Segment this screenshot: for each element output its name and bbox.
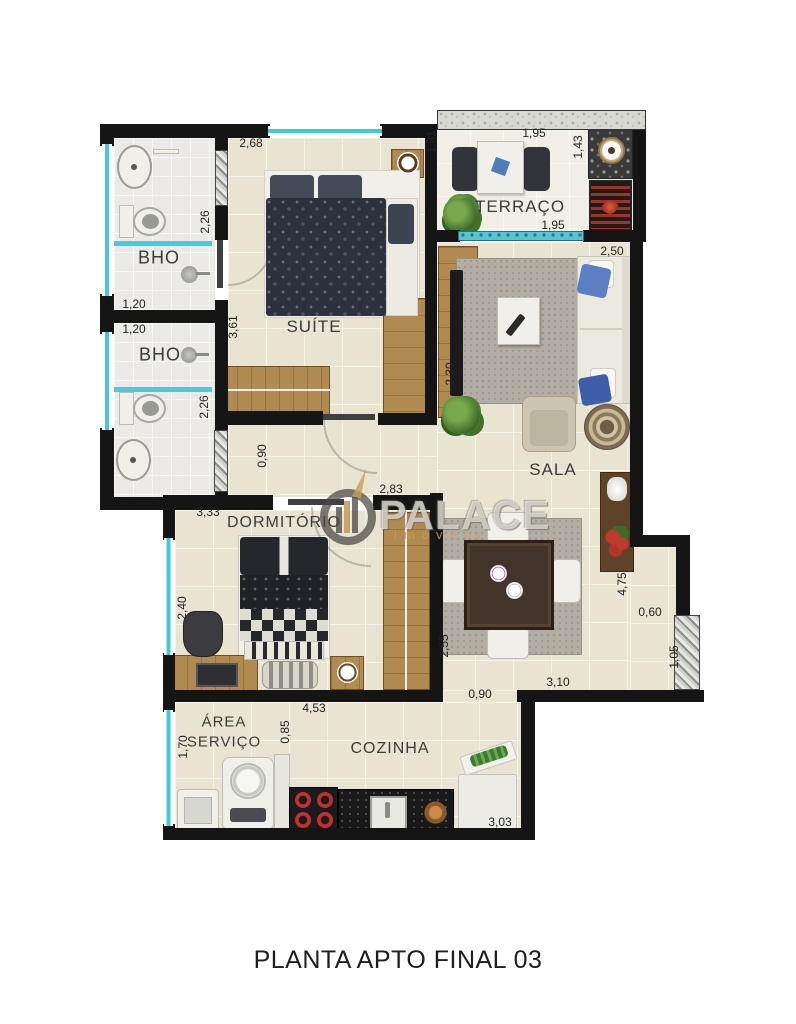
wall xyxy=(429,230,460,242)
dim-label: 2,55 xyxy=(437,634,451,657)
dim-label: 2,30 xyxy=(443,362,457,385)
dim-label: 1,95 xyxy=(541,218,564,232)
room-label-suite: SUÍTE xyxy=(286,317,341,337)
dim-label: 3,61 xyxy=(226,315,240,338)
plan-title: PLANTA APTO FINAL 03 xyxy=(0,946,796,975)
dim-label: 3,33 xyxy=(196,505,219,519)
wall xyxy=(378,413,437,425)
service-partition xyxy=(274,754,290,834)
dining-chair xyxy=(487,626,529,659)
plate xyxy=(490,565,507,582)
wall xyxy=(215,206,228,240)
wall xyxy=(100,124,114,146)
toilet-seat xyxy=(142,401,159,416)
wall xyxy=(630,535,690,547)
dim-label: 1,05 xyxy=(667,645,681,668)
floor-plan-canvas: BHO BHO SUÍTE TERRAÇO SALA DORMITÓRIO ÁR… xyxy=(0,0,796,1024)
dim-label: 4,53 xyxy=(302,701,325,715)
dim-label: 2,26 xyxy=(198,210,212,233)
toilet-tank xyxy=(119,392,134,425)
plant xyxy=(442,396,480,434)
dim-label: 0,85 xyxy=(278,720,292,743)
sink-drain xyxy=(131,164,137,170)
dim-label: 3,03 xyxy=(488,815,511,829)
sink-drain xyxy=(130,457,136,463)
dim-label: 0,90 xyxy=(255,444,269,467)
dim-label: 1,95 xyxy=(522,126,545,140)
sofa-seam xyxy=(580,328,627,330)
faucet xyxy=(385,802,390,818)
dim-label: 1,43 xyxy=(571,135,585,158)
plant xyxy=(443,198,477,232)
wall xyxy=(220,411,323,425)
plate xyxy=(506,582,523,599)
terrace-window-sill xyxy=(458,231,584,241)
wall xyxy=(163,505,175,540)
window xyxy=(164,538,173,655)
door-leaf xyxy=(288,499,344,505)
room-label-bho1: BHO xyxy=(138,248,180,269)
dim-label: 3,10 xyxy=(546,675,569,689)
dim-label: 1,20 xyxy=(122,322,145,336)
room-label-terraco: TERRAÇO xyxy=(475,197,565,217)
window xyxy=(164,710,173,826)
pouf xyxy=(262,661,318,689)
bed-duvet xyxy=(266,198,386,316)
bed-bench xyxy=(244,641,324,660)
dim-label: 2,40 xyxy=(175,596,189,619)
wall xyxy=(163,653,175,712)
bed-checker xyxy=(240,609,328,641)
lamp xyxy=(397,152,419,174)
wall xyxy=(630,242,643,547)
wall xyxy=(521,690,535,840)
shaft-hatch xyxy=(215,150,228,206)
sofa-pillow-blue xyxy=(578,374,612,407)
window xyxy=(102,332,112,430)
dim-label: 1,20 xyxy=(122,297,145,311)
washer-lid xyxy=(230,763,266,799)
shower-glass xyxy=(114,387,212,392)
wall xyxy=(163,828,535,840)
desk-chair xyxy=(183,611,223,657)
round-rug xyxy=(584,404,630,450)
bed-pillow xyxy=(388,204,414,244)
armchair-seat xyxy=(530,410,568,446)
shower-arm xyxy=(195,353,209,356)
vase xyxy=(607,477,627,501)
wall xyxy=(517,690,704,702)
burner xyxy=(317,792,333,808)
dim-label: 1,70 xyxy=(176,735,190,758)
burner xyxy=(295,792,311,808)
dim-label: 0,60 xyxy=(638,605,661,619)
toilet-seat xyxy=(142,214,159,229)
flowers xyxy=(603,526,631,558)
tray xyxy=(337,662,358,683)
wall xyxy=(215,124,228,150)
terrace-chair xyxy=(452,147,479,191)
sofa-back xyxy=(622,257,630,403)
wall xyxy=(583,230,646,242)
laptop xyxy=(196,663,238,687)
wall xyxy=(633,112,646,242)
wall xyxy=(430,493,443,702)
shower-glass xyxy=(114,241,212,246)
bed-pillows xyxy=(240,537,328,575)
window xyxy=(102,144,112,296)
bho2-door-hatch xyxy=(214,430,228,492)
room-label-dormitorio: DORMITÓRIO xyxy=(227,514,341,532)
dim-label: 2,50 xyxy=(600,244,623,258)
burner xyxy=(295,812,311,828)
dim-label: 4,75 xyxy=(615,572,629,595)
dim-label: 1,31 xyxy=(424,130,438,153)
wall xyxy=(100,310,215,323)
room-label-area-servico-2: SERVIÇO xyxy=(187,734,261,751)
grill-sink-drain xyxy=(608,147,615,154)
burner xyxy=(317,812,333,828)
door-leaf xyxy=(217,240,223,288)
bed-duvet xyxy=(240,575,328,609)
toilet-tank xyxy=(119,205,134,238)
counter-decor xyxy=(424,799,447,826)
towel-bar xyxy=(153,149,179,154)
room-label-bho2: BHO xyxy=(139,345,181,366)
room-label-area-servico-1: ÁREA xyxy=(202,714,247,731)
wall xyxy=(676,547,690,619)
terrace-chair xyxy=(523,147,550,191)
room-label-cozinha: COZINHA xyxy=(351,740,430,758)
dim-label: 2,68 xyxy=(239,136,262,150)
wardrobe-divider xyxy=(222,389,330,391)
shower-arm xyxy=(196,272,210,275)
sofa-pillow-blue xyxy=(576,263,612,299)
washer-panel xyxy=(230,808,266,822)
wall xyxy=(425,124,437,425)
dim-label: 2,26 xyxy=(197,395,211,418)
window xyxy=(268,126,382,136)
dining-chair xyxy=(551,559,581,603)
dim-label: 0,90 xyxy=(468,687,491,701)
wardrobe-rail xyxy=(405,512,407,690)
tub-basin xyxy=(184,797,212,824)
room-label-sala: SALA xyxy=(529,460,576,480)
dim-label: 2,83 xyxy=(379,482,402,496)
